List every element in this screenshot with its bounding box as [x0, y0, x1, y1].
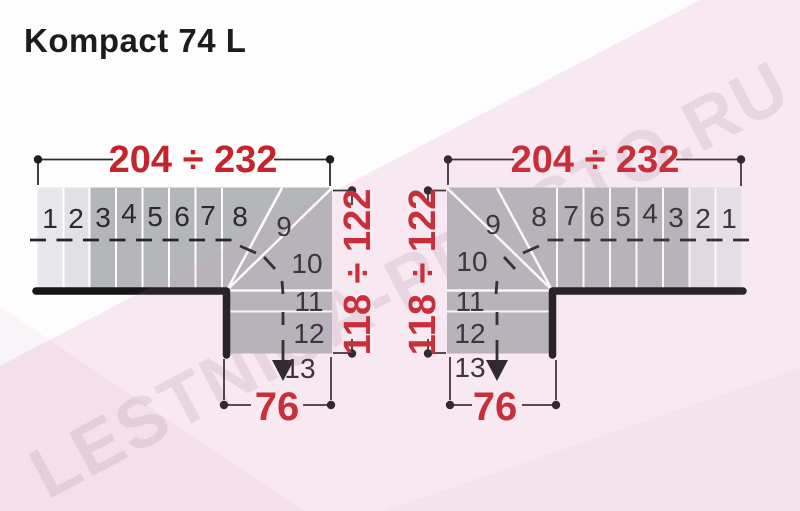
right-step-label-8: 8: [531, 201, 547, 232]
right-step-label-2: 2: [695, 203, 711, 234]
right-step-label-1: 1: [721, 203, 737, 234]
right-stair-plan: 1 2 3 4 5 6 7 8 9 10 11 12 13 204 ÷ 232 …: [402, 139, 749, 429]
right-step-label-12: 12: [454, 318, 485, 349]
left-step-label-10: 10: [291, 248, 322, 279]
right-step-label-4: 4: [642, 198, 658, 229]
left-stair-plan: 1 2 3 4 5 6 7 8 9 10 11 12 13 204 ÷ 232 …: [30, 139, 379, 429]
left-wall: [36, 291, 227, 355]
right-step-label-13: 13: [454, 352, 485, 383]
right-step-label-3: 3: [668, 202, 684, 233]
left-step-label-2: 2: [68, 203, 84, 234]
right-wall: [553, 291, 744, 355]
left-step-label-6: 6: [174, 201, 190, 232]
left-step-label-7: 7: [200, 200, 216, 231]
left-step-label-8: 8: [232, 201, 248, 232]
left-step-label-3: 3: [95, 202, 111, 233]
left-step-label-4: 4: [121, 198, 137, 229]
stair-diagrams: 1 2 3 4 5 6 7 8 9 10 11 12 13 204 ÷ 232 …: [0, 0, 800, 511]
left-step-label-5: 5: [147, 201, 163, 232]
right-step-label-11: 11: [455, 286, 484, 317]
right-height-dimension: 118 ÷ 122: [402, 189, 444, 356]
right-width-dimension: 204 ÷ 232: [511, 139, 680, 181]
left-height-dimension: 118 ÷ 122: [337, 189, 379, 356]
right-step-label-7: 7: [563, 200, 579, 231]
stair-plan-page: LESTNICA-PROSTO.RU Kompact 74 L 1 2 3 4 …: [0, 0, 800, 511]
left-step-label-11: 11: [294, 286, 323, 317]
left-step-label-12: 12: [293, 318, 324, 349]
left-step-label-1: 1: [42, 203, 58, 234]
left-depth-dimension: 76: [255, 385, 300, 429]
right-depth-dimension: 76: [473, 385, 518, 429]
right-exit-arrow: [486, 360, 508, 381]
right-step-label-10: 10: [456, 246, 487, 277]
left-step-label-13: 13: [284, 353, 315, 384]
left-step-label-9: 9: [276, 211, 292, 242]
right-step-label-6: 6: [589, 201, 605, 232]
right-step-label-9: 9: [485, 209, 501, 240]
right-step-label-5: 5: [615, 201, 631, 232]
left-width-dimension: 204 ÷ 232: [109, 139, 278, 181]
